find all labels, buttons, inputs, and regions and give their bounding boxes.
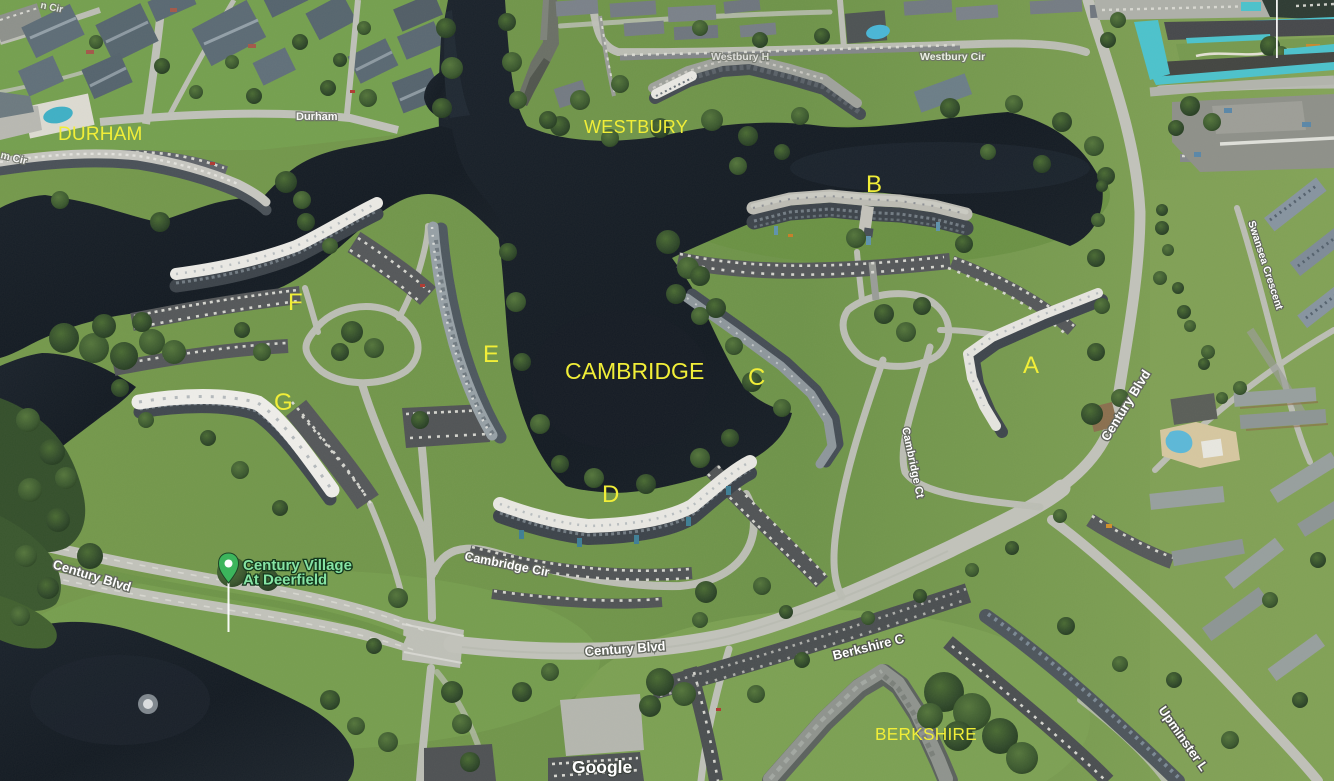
svg-text:E: E [483, 341, 499, 368]
svg-text:C: C [748, 364, 765, 391]
svg-text:F: F [288, 289, 303, 316]
svg-text:CAMBRIDGE: CAMBRIDGE [565, 358, 704, 384]
svg-text:D: D [602, 481, 619, 508]
svg-text:Google: Google [572, 757, 633, 777]
svg-text:At Deerfield: At Deerfield [243, 572, 327, 589]
svg-text:WESTBURY: WESTBURY [584, 117, 688, 137]
svg-text:B: B [866, 171, 882, 198]
svg-text:BERKSHIRE: BERKSHIRE [875, 724, 977, 744]
svg-text:Westbury H: Westbury H [711, 51, 769, 63]
svg-text:G: G [274, 389, 293, 416]
svg-text:A: A [1023, 352, 1039, 379]
svg-text:Durham: Durham [296, 111, 338, 123]
svg-text:Westbury Cir: Westbury Cir [920, 51, 985, 63]
svg-text:DURHAM: DURHAM [58, 124, 143, 145]
